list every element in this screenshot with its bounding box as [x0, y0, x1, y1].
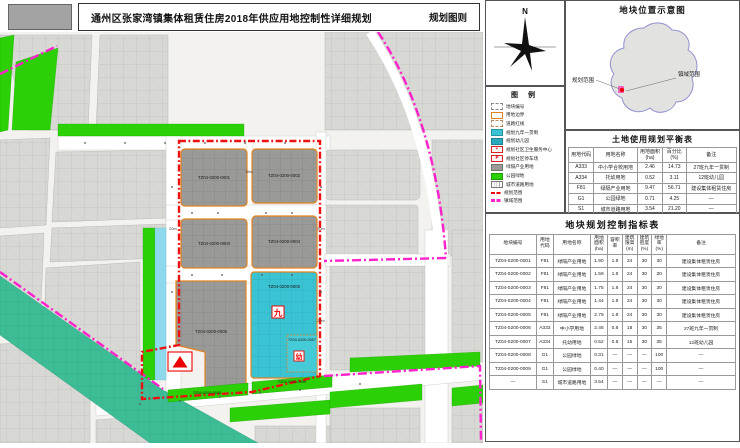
indicator-table-body: TZ04-0200-0001F81绿隔产业用地1.901.8243030建设集体…: [490, 254, 736, 389]
table-row: TZ04-0200-0001F81绿隔产业用地1.901.8243030建设集体…: [490, 254, 736, 268]
table-cell: TZ04-0200-0007: [490, 335, 537, 349]
green-swatch-icon: [491, 173, 503, 180]
indicator-table-panel: 地块规划控制指标表 地块编号用地 代码用地名称用地 面积 (ha)容积 率建筑 …: [485, 213, 740, 442]
table-row: F81绿隔产业用地9.4756.71建设集体租赁住房: [569, 183, 737, 194]
table-row: TZ04-0200-0006A333中小学用地2.460.818303527班九…: [490, 322, 736, 336]
table-cell: 24: [622, 308, 637, 322]
table-row: TZ04-0200-0004F81绿隔产业用地1.441.8243030建设集体…: [490, 295, 736, 309]
plot-label: TZ04-0200-0009: [278, 380, 306, 384]
table-row: TZ04-0200-0007A334托幼用地0.520.815303512班幼儿…: [490, 335, 736, 349]
table-cell: —: [667, 362, 736, 376]
indicator-table-head: 地块编号用地 代码用地名称用地 面积 (ha)容积 率建筑 限高 (m)建筑 密…: [490, 235, 736, 255]
table-cell: 绿隔产业用地: [553, 281, 590, 295]
legend-item: 规划范围: [491, 190, 561, 196]
table-cell: 城市道路用地: [553, 376, 590, 390]
table-cell: 中小学合校用地: [594, 162, 638, 173]
planning-map-svg: 九 幼 TZ04-0200-0001 TZ04-0200-0002 TZ04-0…: [0, 32, 483, 443]
legend-item: 规划幼儿园: [491, 138, 561, 145]
table-cell: 15: [622, 335, 637, 349]
table-cell: 27班九年一贯制: [667, 322, 736, 336]
road-swatch-icon: [491, 181, 503, 188]
road-width-label: 15m: [245, 170, 252, 174]
table-cell: —: [686, 194, 736, 205]
table-cell: 24: [622, 295, 637, 309]
triangle-marker: [168, 352, 192, 371]
table-cell: 30: [637, 295, 652, 309]
table-cell: —: [622, 362, 637, 376]
table-cell: F81: [536, 268, 553, 282]
table-cell: 30: [637, 254, 652, 268]
table-cell: G1: [536, 349, 553, 363]
legend-label: 规划范围: [504, 190, 522, 196]
teal-swatch-icon: [491, 138, 503, 145]
column-header: 容积 率: [608, 235, 623, 255]
table-row: TZ04-0200-0005F81绿隔产业用地2.791.8243030建设集体…: [490, 308, 736, 322]
table-cell: 绿隔产业用地: [553, 308, 590, 322]
site-dot: [620, 88, 624, 92]
table-cell: 30: [637, 322, 652, 336]
table-cell: A333: [569, 162, 594, 173]
table-cell: 30: [637, 308, 652, 322]
table-cell: F81: [536, 254, 553, 268]
legend-items: 地块编号用地边界道路红线规划九年一贯制规划幼儿园+规划社区卫生服务中心P规划社区…: [489, 103, 561, 204]
table-cell: 3.11: [663, 173, 687, 184]
table-cell: 2.46: [590, 322, 607, 336]
table-cell: 2.46: [637, 162, 662, 173]
table-cell: 35: [652, 322, 667, 336]
balance-table-panel: 土地使用规划平衡表 用地代码用地名称用地面积(ha)百分比(%)备注 A333中…: [565, 130, 740, 213]
road-width-label: 20m: [317, 227, 324, 231]
legend-panel: 图 例 地块编号用地边界道路红线规划九年一贯制规划幼儿园+规划社区卫生服务中心P…: [485, 86, 565, 213]
table-cell: 1.90: [590, 254, 607, 268]
town-scope-label: 镇域范围: [678, 70, 701, 78]
table-cell: —: [622, 349, 637, 363]
table-cell: TZ04-0200-0005: [490, 308, 537, 322]
plot-label: TZ04-0200-0007: [288, 338, 316, 342]
legend-label: 道路红线: [506, 121, 524, 127]
table-cell: 0.8: [608, 335, 623, 349]
column-header: 用地 代码: [536, 235, 553, 255]
table-row: TZ04-0200-0009G1公园绿地0.40———100—: [490, 362, 736, 376]
table-cell: —: [608, 362, 623, 376]
column-header: 地块编号: [490, 235, 537, 255]
plot-label: TZ04-0200-0003: [198, 241, 231, 246]
column-header: 建筑 限高 (m): [622, 235, 637, 255]
sheet-type-label: 规划图则: [429, 10, 467, 24]
table-cell: 建设集体租赁住房: [667, 254, 736, 268]
planning-scope-label: 规划范围: [572, 76, 595, 84]
table-cell: F81: [536, 281, 553, 295]
table-cell: —: [622, 376, 637, 390]
column-header: 备注: [686, 148, 736, 163]
table-cell: TZ04-0200-0002: [490, 268, 537, 282]
table-cell: 建设集体租赁住房: [686, 183, 736, 194]
table-cell: 1.44: [590, 295, 607, 309]
table-cell: 1.8: [608, 268, 623, 282]
plot-label: TZ04-0200-0006: [268, 284, 301, 289]
table-row: TZ04-0200-0002F81绿隔产业用地1.591.8243030建设集体…: [490, 268, 736, 282]
table-cell: F81: [536, 295, 553, 309]
table-cell: 0.71: [637, 194, 662, 205]
title-bar: 通州区张家湾镇集体租赁住房2018年供应用地控制性详细规划 规划图则: [78, 3, 480, 31]
table-cell: —: [637, 349, 652, 363]
table-cell: TZ04-0200-0006: [490, 322, 537, 336]
plot-label: TZ04-0200-0001: [198, 175, 231, 180]
table-cell: —: [637, 376, 652, 390]
table-cell: S1: [536, 376, 553, 390]
table-cell: TZ04-0200-0003: [490, 281, 537, 295]
table-cell: 27班九年一贯制: [686, 162, 736, 173]
cyan-swatch-icon: [491, 129, 503, 136]
table-cell: F81: [536, 308, 553, 322]
legend-item: 道路红线: [491, 120, 561, 127]
compass-svg: N: [486, 1, 564, 85]
table-cell: TZ04-0200-0001: [490, 254, 537, 268]
plot-label: TZ04-0200-0008: [193, 391, 221, 395]
table-cell: 1.8: [608, 308, 623, 322]
table-cell: 建设集体租赁住房: [667, 295, 736, 309]
plot-label: TZ04-0200-0002: [268, 173, 301, 178]
plot-number-swatch-icon: [491, 103, 503, 110]
column-header: 用地名称: [594, 148, 638, 163]
table-cell: G1: [569, 194, 594, 205]
table-cell: —: [490, 376, 537, 390]
table-cell: 托幼用地: [594, 173, 638, 184]
table-cell: 绿隔产业用地: [594, 183, 638, 194]
balance-table-head: 用地代码用地名称用地面积(ha)百分比(%)备注: [569, 148, 737, 163]
plot-label: TZ04-0200-0005: [195, 329, 228, 334]
table-cell: 56.71: [663, 183, 687, 194]
table-cell: 12班幼儿园: [667, 335, 736, 349]
legend-item: 公园绿地: [491, 173, 561, 180]
table-cell: 建设集体租赁住房: [667, 308, 736, 322]
table-cell: TZ04-0200-0009: [490, 362, 537, 376]
table-cell: 1.59: [590, 268, 607, 282]
legend-item: +规划社区卫生服务中心: [491, 146, 561, 153]
table-cell: 绿隔产业用地: [553, 295, 590, 309]
table-cell: TZ04-0200-0008: [490, 349, 537, 363]
legend-item: 规划九年一贯制: [491, 129, 561, 136]
red-dash-swatch-icon: [491, 192, 501, 194]
page-title: 通州区张家湾镇集体租赁住房2018年供应用地控制性详细规划: [91, 10, 372, 25]
table-cell: 14.73: [663, 162, 687, 173]
column-header: 备注: [667, 235, 736, 255]
road-width-label: 20m: [317, 319, 324, 323]
kindergarten-symbol: 幼: [296, 352, 303, 361]
table-cell: 30: [652, 308, 667, 322]
table-cell: —: [637, 362, 652, 376]
column-header: 用地面积(ha): [637, 148, 662, 163]
table-cell: 30: [637, 268, 652, 282]
table-cell: —: [667, 349, 736, 363]
table-cell: 18: [622, 322, 637, 336]
table-cell: 0.52: [637, 173, 662, 184]
table-cell: —: [608, 376, 623, 390]
table-cell: 12班幼儿园: [686, 173, 736, 184]
compass-panel: N: [485, 0, 565, 86]
table-cell: 建设集体租赁住房: [667, 268, 736, 282]
indicator-table: 地块编号用地 代码用地名称用地 面积 (ha)容积 率建筑 限高 (m)建筑 密…: [489, 234, 736, 390]
table-cell: A333: [536, 322, 553, 336]
table-cell: 绿隔产业用地: [553, 268, 590, 282]
magenta-dash-swatch-icon: [491, 199, 501, 201]
table-cell: 100: [652, 362, 667, 376]
legend-title: 图 例: [489, 90, 561, 100]
table-row: TZ04-0200-0008G1公园绿地0.31———100—: [490, 349, 736, 363]
table-cell: 中小学用地: [553, 322, 590, 336]
table-cell: 1.8: [608, 295, 623, 309]
red-p-swatch-icon: P: [491, 155, 503, 162]
red-cross-swatch-icon: +: [491, 146, 503, 153]
table-row: TZ04-0200-0003F81绿隔产业用地1.751.8243030建设集体…: [490, 281, 736, 295]
table-cell: —: [667, 376, 736, 390]
table-cell: 公园绿地: [553, 362, 590, 376]
table-cell: 100: [652, 349, 667, 363]
table-cell: 1.75: [590, 281, 607, 295]
location-map-title: 地块位置示意图: [566, 4, 739, 16]
table-cell: 0.40: [590, 362, 607, 376]
planning-map: 九 幼 TZ04-0200-0001 TZ04-0200-0002 TZ04-0…: [0, 32, 483, 443]
canal-strip: [155, 228, 166, 380]
table-cell: TZ04-0200-0004: [490, 295, 537, 309]
gray-swatch-icon: [491, 164, 503, 171]
table-cell: —: [608, 349, 623, 363]
table-cell: —: [652, 376, 667, 390]
table-cell: 30: [637, 281, 652, 295]
table-cell: 1.8: [608, 281, 623, 295]
table-cell: 35: [652, 335, 667, 349]
table-cell: 绿隔产业用地: [553, 254, 590, 268]
table-row: A334托幼用地0.523.1112班幼儿园: [569, 173, 737, 184]
table-cell: A334: [536, 335, 553, 349]
column-header: 用地 面积 (ha): [590, 235, 607, 255]
table-cell: 30: [652, 281, 667, 295]
table-cell: 1.8: [608, 254, 623, 268]
table-cell: 24: [622, 281, 637, 295]
legend-label: 规划社区卫生服务中心: [506, 147, 552, 153]
table-cell: 0.52: [590, 335, 607, 349]
legend-item: 用地边界: [491, 112, 561, 119]
balance-table-title: 土地使用规划平衡表: [566, 134, 739, 145]
table-cell: 30: [652, 295, 667, 309]
legend-label: 公园绿地: [506, 173, 524, 179]
table-cell: 0.31: [590, 349, 607, 363]
logo-block: [8, 4, 72, 30]
table-cell: F81: [569, 183, 594, 194]
table-cell: 30: [637, 335, 652, 349]
plot-label: TZ04-0200-0004: [268, 239, 301, 244]
table-cell: 3.54: [590, 376, 607, 390]
legend-label: 规划幼儿园: [506, 138, 529, 144]
legend-label: 绿隔产业用地: [506, 164, 534, 170]
table-cell: 托幼用地: [553, 335, 590, 349]
table-cell: 公园绿地: [553, 349, 590, 363]
table-cell: 2.79: [590, 308, 607, 322]
table-cell: 公园绿地: [594, 194, 638, 205]
legend-label: 地块编号: [506, 104, 524, 110]
table-cell: A334: [569, 173, 594, 184]
legend-item: 绿隔产业用地: [491, 164, 561, 171]
school-symbol: 九: [273, 308, 283, 318]
column-header: 建筑 密度 (%): [637, 235, 652, 255]
legend-item: 城市道路用地: [491, 181, 561, 188]
indicator-table-title: 地块规划控制指标表: [486, 218, 739, 231]
table-cell: 0.8: [608, 322, 623, 336]
orange-line-swatch-icon: [491, 112, 503, 119]
legend-item: P规划社区停车场: [491, 155, 561, 162]
district-outline: [610, 23, 697, 112]
legend-label: 镇域范围: [504, 198, 522, 204]
location-map-panel: 地块位置示意图 规划范围 镇域范围: [565, 0, 740, 130]
legend-label: 用地边界: [506, 112, 524, 118]
table-cell: 30: [652, 268, 667, 282]
column-header: 用地名称: [553, 235, 590, 255]
table-cell: G1: [536, 362, 553, 376]
table-row: —S1城市道路用地3.54—————: [490, 376, 736, 390]
compass-rose-icon: [504, 17, 546, 71]
column-header: 百分比(%): [663, 148, 687, 163]
location-map-svg: 规划范围 镇域范围: [566, 16, 739, 128]
table-cell: 24: [622, 254, 637, 268]
table-cell: 4.25: [663, 194, 687, 205]
north-label: N: [522, 7, 528, 16]
legend-item: 地块编号: [491, 103, 561, 110]
legend-label: 城市道路用地: [506, 182, 534, 188]
road-width-label: 20m: [169, 227, 176, 231]
column-header: 绿地 率 (%): [652, 235, 667, 255]
legend-label: 规划社区停车场: [506, 156, 538, 162]
legend-item: 镇域范围: [491, 198, 561, 204]
dash-box-swatch-icon: [491, 120, 503, 127]
column-header: 用地代码: [569, 148, 594, 163]
table-cell: 24: [622, 268, 637, 282]
table-cell: 30: [652, 254, 667, 268]
table-row: A333中小学合校用地2.4614.7327班九年一贯制: [569, 162, 737, 173]
legend-label: 规划九年一贯制: [506, 130, 538, 136]
table-cell: 9.47: [637, 183, 662, 194]
table-row: G1公园绿地0.714.25—: [569, 194, 737, 205]
table-cell: 建设集体租赁住房: [667, 281, 736, 295]
